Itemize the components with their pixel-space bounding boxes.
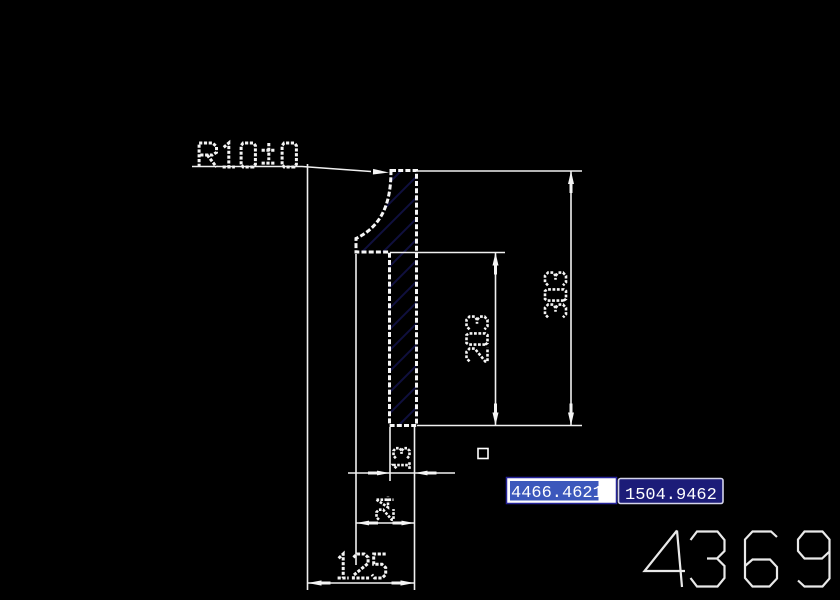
- svg-text:1504.9462: 1504.9462: [625, 486, 717, 505]
- svg-text:4466.4621: 4466.4621: [511, 484, 603, 503]
